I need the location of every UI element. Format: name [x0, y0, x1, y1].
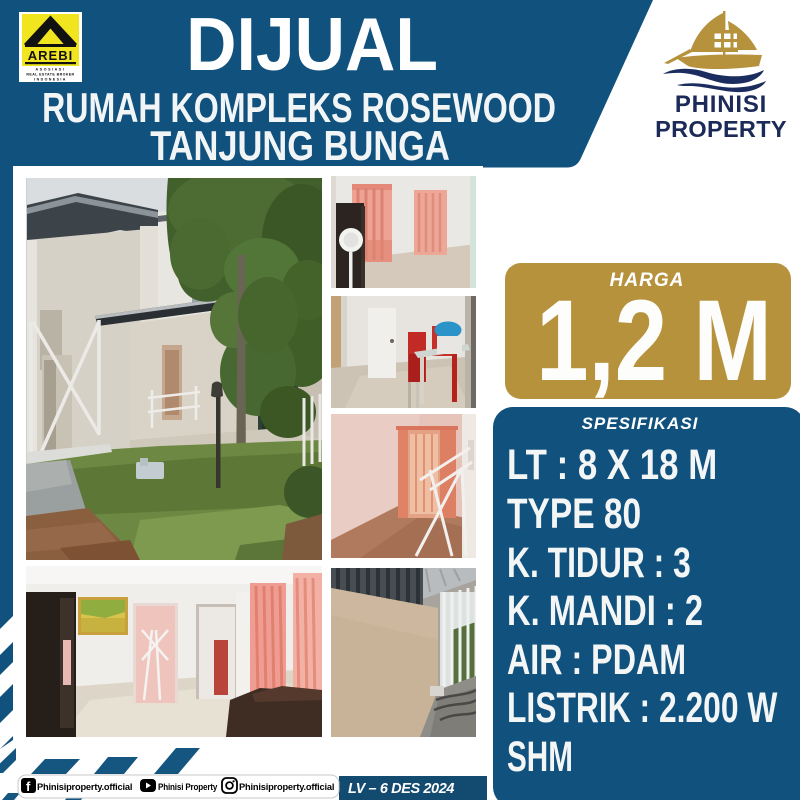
svg-text:Phinisi Property: Phinisi Property: [158, 781, 217, 792]
svg-text:1,2 M: 1,2 M: [536, 277, 772, 405]
svg-text:SPESIFIKASI: SPESIFIKASI: [582, 414, 699, 433]
svg-text:REAL ESTATE BROKER: REAL ESTATE BROKER: [26, 73, 74, 77]
svg-text:INDONESIA: INDONESIA: [34, 78, 67, 82]
svg-text:LV – 6 DES 2024: LV – 6 DES 2024: [348, 781, 454, 797]
svg-text:TYPE 80: TYPE 80: [507, 490, 641, 538]
svg-text:PHINISI: PHINISI: [675, 91, 767, 118]
svg-text:Phinisiproperty.official: Phinisiproperty.official: [37, 782, 132, 792]
svg-text:K. MANDI : 2: K. MANDI : 2: [507, 587, 703, 635]
svg-text:K. TIDUR : 3: K. TIDUR : 3: [507, 539, 691, 587]
svg-text:Phinisiproperty.official: Phinisiproperty.official: [239, 782, 334, 792]
svg-text:LISTRIK : 2.200 W: LISTRIK : 2.200 W: [507, 684, 778, 732]
svg-text:SHM: SHM: [507, 733, 573, 781]
svg-text:f: f: [26, 779, 31, 794]
svg-text:ASOSIASI: ASOSIASI: [36, 68, 66, 72]
svg-text:DIJUAL: DIJUAL: [186, 3, 438, 87]
svg-text:AIR : PDAM: AIR : PDAM: [507, 637, 686, 685]
svg-text:TANJUNG BUNGA: TANJUNG BUNGA: [150, 123, 450, 170]
svg-text:AREBI: AREBI: [28, 48, 73, 63]
svg-text:LT : 8 X 18 M: LT : 8 X 18 M: [507, 442, 717, 489]
svg-text:PROPERTY: PROPERTY: [655, 116, 787, 142]
